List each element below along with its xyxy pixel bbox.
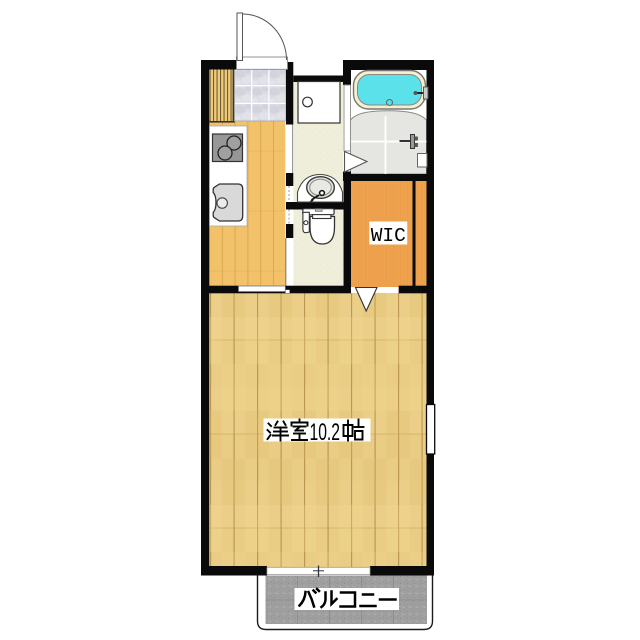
svg-text:10.2: 10.2: [310, 419, 340, 446]
svg-text:WIC: WIC: [371, 225, 406, 247]
